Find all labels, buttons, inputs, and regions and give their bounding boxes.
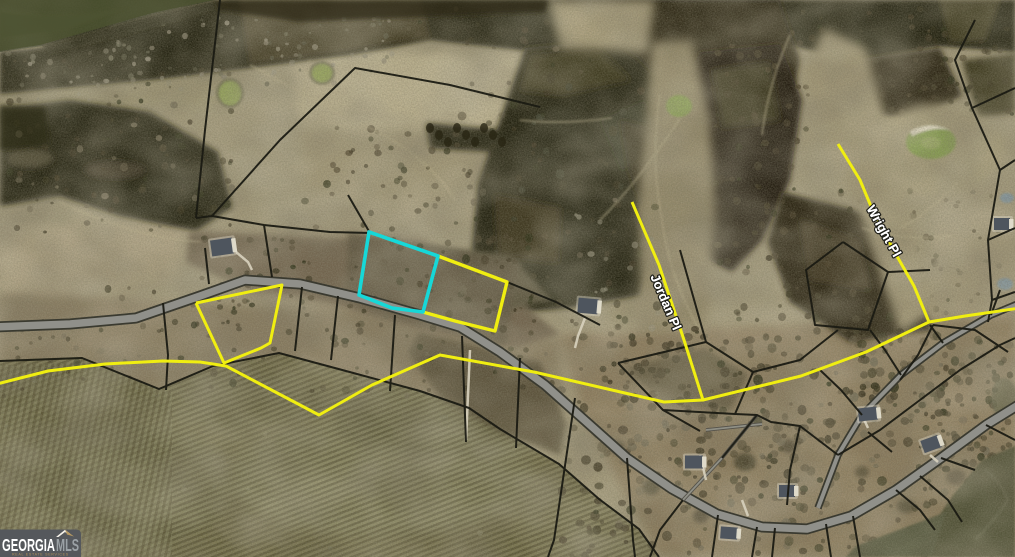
svg-text:REAL ESTATE SERVICES: REAL ESTATE SERVICES [12, 553, 69, 557]
